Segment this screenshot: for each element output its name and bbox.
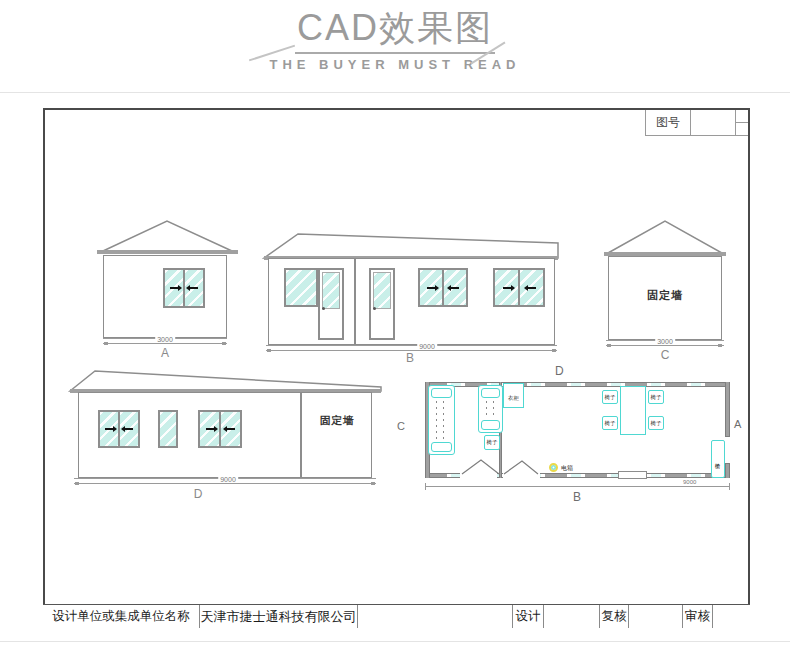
slide-arrow-left-icon xyxy=(528,287,536,289)
window-pane xyxy=(518,270,543,305)
drawing-number-value xyxy=(691,110,735,135)
window-pane xyxy=(100,412,118,446)
window-pane xyxy=(286,270,316,305)
elevation-d-window-1 xyxy=(98,410,140,448)
base-foot xyxy=(104,342,108,345)
elevation-b-fixed-window xyxy=(284,268,318,307)
slide-arrow-left-icon xyxy=(125,428,133,430)
elevation-b-window-1 xyxy=(418,268,468,307)
cad-effect-page: CAD效果图 THE BUYER MUST READ 图号 3000 A xyxy=(0,0,790,656)
floor-plan: 衣柜 椅子 椅子 椅子 椅子 椅子 椅子 电箱 xyxy=(425,362,740,507)
elevation-b-door-1 xyxy=(318,268,344,340)
elevation-c-roof xyxy=(600,215,730,259)
design-value-cell xyxy=(544,605,600,628)
bottom-divider-line xyxy=(0,641,790,642)
window-pane xyxy=(495,270,518,305)
base-foot xyxy=(75,482,79,485)
empty-cell xyxy=(358,605,513,628)
door-handle xyxy=(373,307,376,310)
elevation-c-label: C xyxy=(661,348,670,362)
window-pane xyxy=(183,270,203,306)
base-foot xyxy=(222,342,226,345)
slide-arrow-right-icon xyxy=(170,287,178,289)
slide-arrow-left-icon xyxy=(451,287,459,289)
plan-label-left: C xyxy=(397,420,405,432)
page-subtitle: THE BUYER MUST READ xyxy=(0,57,790,72)
elevation-a-window xyxy=(163,268,205,308)
window-pane xyxy=(118,412,138,446)
door-handle xyxy=(322,307,325,310)
drawing-number-end-cell xyxy=(735,110,748,135)
panel-seam xyxy=(354,258,356,345)
title-block: 设计单位或集成单位名称 天津市捷士通科技有限公司 设计 复核 审核 xyxy=(43,604,750,628)
base-foot xyxy=(718,344,722,347)
elevation-d-fixed-wall-text: 固定墙 xyxy=(302,414,372,428)
elevation-a-roof xyxy=(95,215,240,257)
plan-dimension: 9000 xyxy=(683,479,696,485)
plan-label-right: A xyxy=(734,418,741,430)
window-pane xyxy=(165,270,183,306)
base-foot xyxy=(371,482,375,485)
plan-label-bottom: B xyxy=(573,490,581,504)
slide-arrow-right-icon xyxy=(105,428,113,430)
base-foot xyxy=(552,349,556,352)
review-label-cell: 复核 xyxy=(600,605,629,628)
elevation-d-fixed-window xyxy=(158,410,178,448)
design-label-cell: 设计 xyxy=(513,605,544,628)
dimension-tick xyxy=(425,483,426,490)
elevation-b-dimension: 9000 xyxy=(417,344,437,350)
window-pane xyxy=(420,270,442,305)
plan-label-top: D xyxy=(555,364,564,378)
elevation-d-dimension: 9000 xyxy=(218,477,238,483)
elevation-c-dimension: 3000 xyxy=(655,339,675,345)
company-name-cell: 天津市捷士通科技有限公司 xyxy=(200,605,358,628)
window-pane xyxy=(442,270,466,305)
audit-value-cell xyxy=(713,605,750,628)
panel-seam xyxy=(300,392,302,478)
drawing-number-label: 图号 xyxy=(646,110,691,135)
review-value-cell xyxy=(629,605,683,628)
elevation-d-roof xyxy=(65,365,385,395)
plan-dimension-line xyxy=(425,486,730,487)
window-pane xyxy=(219,412,240,446)
slide-arrow-right-icon xyxy=(427,287,435,289)
dimension-tick xyxy=(729,483,730,490)
window-pane xyxy=(160,412,176,446)
elevation-b-door-2 xyxy=(369,268,395,340)
base-foot xyxy=(267,349,271,352)
elevation-d-window-2 xyxy=(198,410,242,448)
title-underline xyxy=(295,52,495,54)
slide-arrow-left-icon xyxy=(227,428,235,430)
elevation-a-dimension: 3000 xyxy=(155,337,175,343)
elevation-b-window-2 xyxy=(493,268,545,307)
door-glass xyxy=(322,272,340,309)
drawing-number-box: 图号 xyxy=(645,110,748,136)
slide-arrow-left-icon xyxy=(190,287,198,289)
designer-label-cell: 设计单位或集成单位名称 xyxy=(43,605,200,628)
audit-label-cell: 审核 xyxy=(683,605,713,628)
elevation-d-label: D xyxy=(194,487,203,501)
slide-arrow-right-icon xyxy=(206,428,214,430)
elevation-b-label: B xyxy=(406,351,414,365)
door-glass xyxy=(373,272,391,309)
page-title: CAD效果图 xyxy=(0,8,790,48)
top-divider-line xyxy=(0,92,790,93)
elevation-c-fixed-wall-text: 固定墙 xyxy=(608,288,722,303)
window-pane xyxy=(200,412,219,446)
base-foot xyxy=(607,344,611,347)
elevation-a-label: A xyxy=(161,346,169,360)
slide-arrow-right-icon xyxy=(503,287,511,289)
